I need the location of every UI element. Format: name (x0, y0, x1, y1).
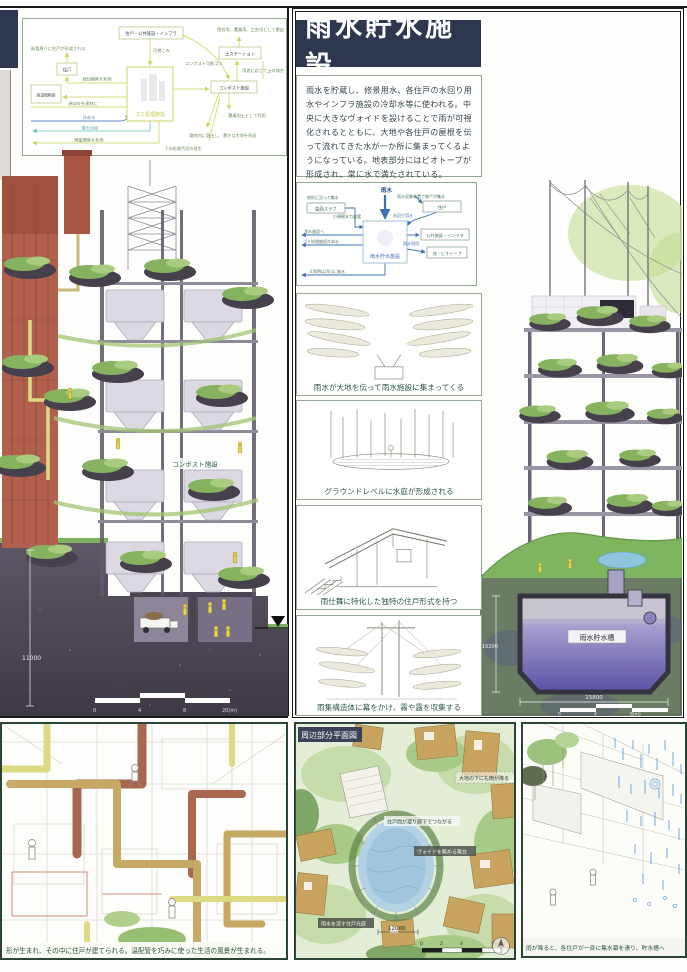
rain-label-household: 水回り用水 (393, 212, 413, 218)
rain-node-pond: 池・ビオトープ (432, 250, 462, 257)
flow-node-greenhouse: 高温植物園 (37, 93, 56, 98)
terrace-vegetation (519, 306, 682, 516)
rain-node-public-infra: 公共施設・インフラ (426, 232, 464, 239)
description-box: 雨水を貯蔵し、修景用水、各住戸の水回り用水やインフラ施設の冷却水等に使われる。中… (296, 75, 482, 177)
right-scale-0: 0 (558, 712, 561, 717)
flow-node-house: 住戸 (63, 67, 72, 74)
flow-label-burnable: 可燃ごみ (153, 47, 170, 54)
tank-pipe (628, 590, 642, 606)
flow-label-compostable: コンポスト可能ゴミ (185, 60, 223, 67)
industrial-tower (2, 150, 92, 548)
sketch-2-caption: グラウンドレベルに水庭が形成される (297, 485, 481, 499)
tank-dim-v-value: 16200 (482, 644, 498, 650)
pipes-perspective-drawing: 形が生まれ、その中に住戸が建てられる。温配管を巧みに使った生活の風景が生まれる。 (2, 724, 286, 958)
rain-label-purification: 浄水施設へ (304, 228, 324, 234)
bottom-left-panel: 形が生まれ、その中に住戸が建てられる。温配管を巧みに使った生活の風景が生まれる。 (0, 722, 288, 960)
corner-block (0, 10, 18, 68)
sketch-1-caption: 雨水が大地を伝って雨水施設に集まってくる (297, 381, 481, 395)
left-scale-0: 0 (93, 708, 96, 714)
caption-bottom-right: 雨が降ると、各住戸が一斉に集水幕を張り、貯水槽へ (526, 944, 665, 952)
basement-column (190, 597, 196, 642)
green-hill (480, 533, 682, 578)
tank-dim-h-value: 15800 (585, 695, 603, 701)
flow-label-cooling: 冷却水 (83, 114, 96, 121)
flow-node-compost: コンポスト施設 (219, 85, 250, 92)
rain-node-slab: 曲面スラブ (315, 206, 337, 213)
left-dimension-value: 11000 (22, 655, 41, 662)
sketch-4-caption: 雨集構造体に幕をかけ、霧や露を収集する (297, 701, 481, 715)
left-section-drawing: コンポスト施設 11000 0 4 8 20(m) (0, 150, 288, 716)
page-title-bar: 雨水貯水施設 (296, 20, 481, 67)
flow-label-agri-soil: 農業用土として利用 (228, 112, 266, 119)
plan-scale-2: 2 (440, 941, 443, 947)
compost-hoppers (106, 290, 242, 592)
rain-label-hydro: 小規模水力発電 (333, 213, 361, 219)
red-accent-lines (12, 872, 162, 916)
flow-label-heat-use: 焼却廃熱を利用 (82, 76, 111, 83)
poster-root: 住戸・公共施設・インフラ 住戸 高温植物園 ゴミ処理施設 土ステーション コンポ… (0, 0, 687, 972)
description-text: 雨水を貯蔵し、修景用水、各住戸の水回り用水やインフラ施設の冷却水等に使われる。中… (306, 86, 472, 179)
site-plan-drawing: 周辺部分平面図 大地の下にも雨が降る 住戸間が渡り廊下でつながる ヴォイドを眺め… (296, 724, 514, 958)
north-arrow-icon (493, 938, 510, 955)
sketch-box-2: グラウンドレベルに水庭が形成される (296, 400, 482, 500)
sketch-4-mast-drawing (297, 616, 481, 701)
flow-diagram-panel: 住戸・公共施設・インフラ 住戸 高温植物園 ゴミ処理施設 土ステーション コンポ… (22, 18, 287, 156)
plan-label-stage: ヴォイドを眺める舞台 (417, 849, 467, 856)
storage-tank (520, 596, 668, 692)
service-pipes (2, 724, 286, 958)
compost-facility-label: コンポスト施設 (172, 460, 218, 469)
sketch-box-4: 雨集構造体に幕をかけ、霧や露を収集する (296, 615, 482, 716)
caption-bottom-left: 形が生まれ、その中に住戸が建てられる。温配管を巧みに使った生活の風景が生まれる。 (6, 946, 270, 955)
right-section-drawing: 雨水貯水槽 16200 15800 0 4 8(m) (480, 178, 682, 716)
terrace-buildings (524, 296, 682, 574)
sketch-3-caption: 雨仕舞に特化した独特の住戸形式を持つ (297, 595, 481, 609)
sketch-box-1: 雨水が大地を伝って雨水施設に集まってくる (296, 293, 482, 396)
rain-label-rain-use: 雨水利用 (403, 240, 419, 246)
biotope-pond (598, 552, 646, 568)
flow-diagram-svg: 住戸・公共施設・インフラ 住戸 高温植物園 ゴミ処理施設 土ステーション コンポ… (23, 19, 286, 155)
plan-dim-value: 12000 (388, 926, 406, 932)
rain-membrane-drawing: 雨が降ると、各住戸が一斉に集水幕を張り、貯水槽へ (523, 724, 685, 956)
sketch-2-watergarden-drawing (297, 401, 481, 485)
left-scale-end: 20(m) (222, 708, 237, 714)
flow-node-waste: ゴミ処理施設 (135, 111, 165, 118)
rain-diagram-panel: 雨水 曲面スラブ 住戸 雨水貯水施設 公共施設・インフラ 池・ビオトープ 地形に… (296, 182, 477, 286)
flow-arrow-cooling (31, 114, 129, 121)
plan-label-rain-below: 大地の下にも雨が降る (459, 775, 509, 782)
storage-watermark-icon (377, 230, 393, 246)
flow-label-ash: 焼却灰を建材に (68, 100, 97, 107)
flow-label-shipping: 園芸用、農業用、工芸用として搬出 (217, 26, 284, 33)
right-scale-4: 4 (594, 712, 597, 717)
bottom-right-panel: 雨が降ると、各住戸が一斉に集水幕を張り、貯水槽へ (521, 722, 687, 958)
sketch-3-house-drawing (297, 506, 481, 595)
plan-scale-0: 0 (420, 941, 423, 947)
flow-node-soil-station: 土ステーション (225, 51, 255, 58)
pond-inner (366, 828, 426, 904)
site-plan-panel: 周辺部分平面図 大地の下にも雨が降る 住戸間が渡り廊下でつながる ヴォイドを眺め… (294, 722, 516, 960)
collection-membrane-2 (533, 784, 581, 834)
plan-label-corridor: 住戸間が渡り廊下でつながる (387, 819, 452, 826)
plan-title: 周辺部分平面図 (301, 730, 357, 740)
plan-label-court: 雨水を流す住戸光庭 (321, 921, 366, 928)
plan-scale-4: 4 (460, 941, 463, 947)
right-scale-end: 8(m) (630, 712, 641, 717)
rain-label-house-collect: 雨水収集装置で各戸が集水 (397, 193, 445, 199)
basement-slab (130, 592, 256, 597)
rain-label-cooling: ゴミ処理施設冷却水 (303, 238, 339, 244)
sketch-1-funnel-drawing (297, 294, 481, 381)
left-scale-8: 8 (183, 708, 186, 714)
flow-node-housing-infra: 住戸・公共施設・インフラ (125, 30, 176, 37)
tank-label: 雨水貯水槽 (580, 633, 615, 642)
rain-diagram-svg: 雨水 曲面スラブ 住戸 雨水貯水施設 公共施設・インフラ 池・ビオトープ 地形に… (297, 183, 476, 285)
truss-tower (128, 160, 176, 270)
rain-node-house: 住戸 (438, 204, 447, 211)
flow-label-pipe-housing: 配管周りに住戸が形成される (31, 45, 85, 52)
left-scale-4: 4 (138, 708, 141, 714)
left-panel-bottom-border (0, 716, 288, 718)
rain-node-storage: 雨水貯水施設 (370, 253, 400, 260)
rain-label-terrain: 地形に沿って集水 (307, 194, 339, 200)
rain-node-rain: 雨水 (381, 186, 393, 194)
sketched-people (550, 869, 596, 905)
flow-label-waste-heat: 廃棄廃熱を利用 (74, 137, 103, 144)
tank-valve-icon (644, 612, 656, 624)
flow-label-soil-mix: 用途に応じて土の調合 (242, 67, 285, 74)
sketch-box-3: 雨仕舞に特化した独特の住戸形式を持つ (296, 505, 482, 610)
rain-label-flood: 大雨時は河川に放水 (309, 268, 345, 274)
flow-label-power: 電力供給 (82, 125, 100, 132)
flow-label-rich-land: 敷地内に客土し、豊かな大地を形成 (189, 132, 256, 139)
page-title: 雨水貯水施設 (305, 5, 481, 83)
